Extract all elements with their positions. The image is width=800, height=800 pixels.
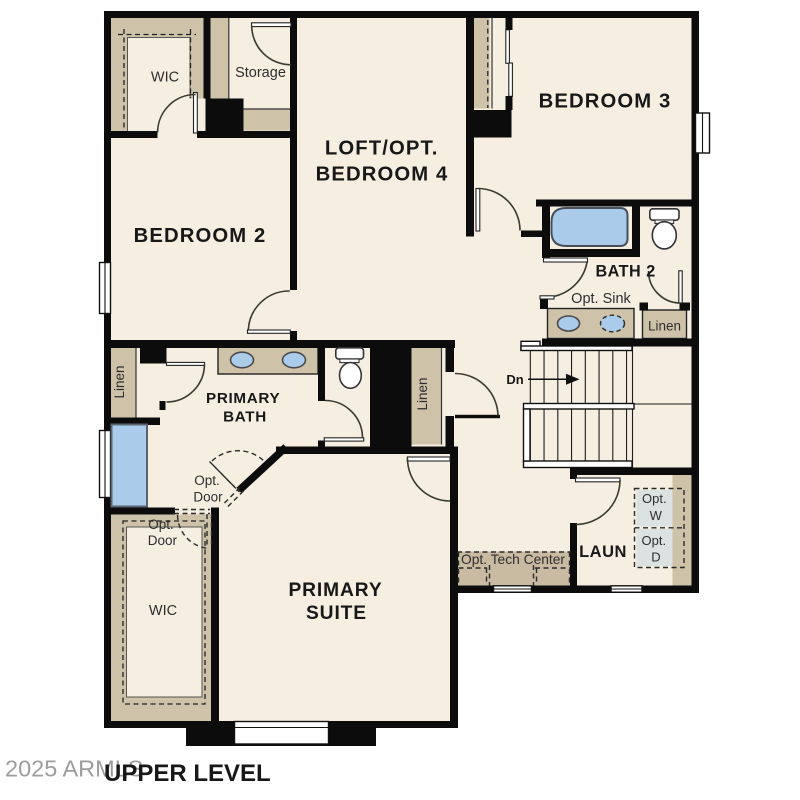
svg-text:BEDROOM 2: BEDROOM 2 (134, 225, 267, 247)
svg-text:PRIMARY: PRIMARY (288, 580, 382, 601)
svg-text:WIC: WIC (149, 603, 177, 619)
svg-text:Opt.: Opt. (194, 473, 220, 488)
svg-text:Opt. Tech Center: Opt. Tech Center (461, 552, 565, 567)
svg-text:BEDROOM 3: BEDROOM 3 (539, 91, 672, 113)
svg-text:SUITE: SUITE (306, 603, 367, 624)
svg-text:Opt.: Opt. (148, 517, 174, 532)
svg-text:Opt.: Opt. (642, 533, 667, 548)
svg-text:BEDROOM 4: BEDROOM 4 (316, 164, 449, 186)
svg-text:WIC: WIC (151, 70, 179, 86)
svg-text:Opt.: Opt. (642, 491, 667, 506)
svg-text:D: D (651, 549, 660, 564)
svg-text:Storage: Storage (235, 65, 286, 81)
svg-text:Door: Door (148, 533, 178, 548)
svg-text:Dn: Dn (506, 372, 523, 387)
svg-text:Linen: Linen (415, 377, 430, 410)
svg-text:PRIMARY: PRIMARY (206, 390, 280, 407)
svg-text:Linen: Linen (648, 319, 681, 334)
svg-text:Linen: Linen (112, 365, 127, 398)
svg-text:Door: Door (193, 490, 223, 505)
svg-text:BATH 2: BATH 2 (595, 263, 655, 281)
svg-text:BATH: BATH (223, 409, 267, 426)
svg-text:LOFT/OPT.: LOFT/OPT. (325, 138, 439, 160)
svg-text:W: W (650, 508, 663, 523)
svg-text:LAUN: LAUN (579, 543, 627, 561)
svg-text:Opt. Sink: Opt. Sink (571, 291, 631, 307)
svg-text:UPPER LEVEL: UPPER LEVEL (104, 760, 271, 787)
